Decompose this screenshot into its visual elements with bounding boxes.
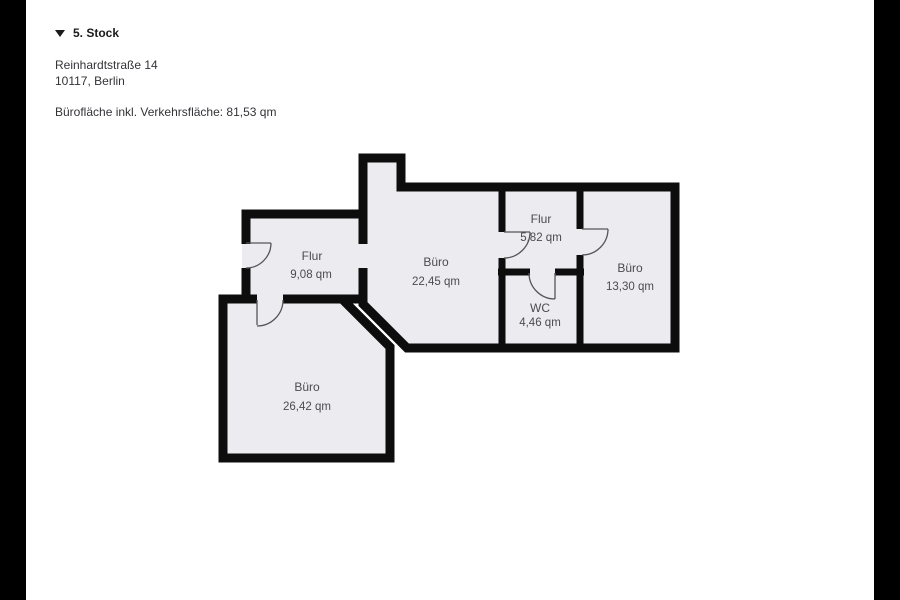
- room-area-flur-right: 5,82 qm: [520, 232, 562, 244]
- room-area-buero-center: 22,45 qm: [412, 276, 460, 288]
- floorplan-page: 5. Stock Reinhardtstraße 14 10117, Berli…: [26, 0, 874, 600]
- room-name-wc: WC: [530, 301, 550, 315]
- room-name-flur-left: Flur: [302, 249, 323, 263]
- room-name-buero-right: Büro: [617, 261, 643, 275]
- letterbox-left: [0, 0, 26, 600]
- letterbox-right: [874, 0, 900, 600]
- floorplan-svg: Flur 9,08 qm Büro 22,45 qm Flur 5,82 qm …: [26, 0, 874, 600]
- room-area-buero-right: 13,30 qm: [606, 281, 654, 293]
- room-name-flur-right: Flur: [531, 212, 552, 226]
- room-area-flur-left: 9,08 qm: [290, 269, 332, 281]
- room-name-buero-bottom: Büro: [294, 380, 320, 394]
- room-name-buero-center: Büro: [423, 255, 449, 269]
- room-area-wc: 4,46 qm: [519, 317, 561, 329]
- room-fills: [223, 158, 675, 458]
- room-area-buero-bottom: 26,42 qm: [283, 401, 331, 413]
